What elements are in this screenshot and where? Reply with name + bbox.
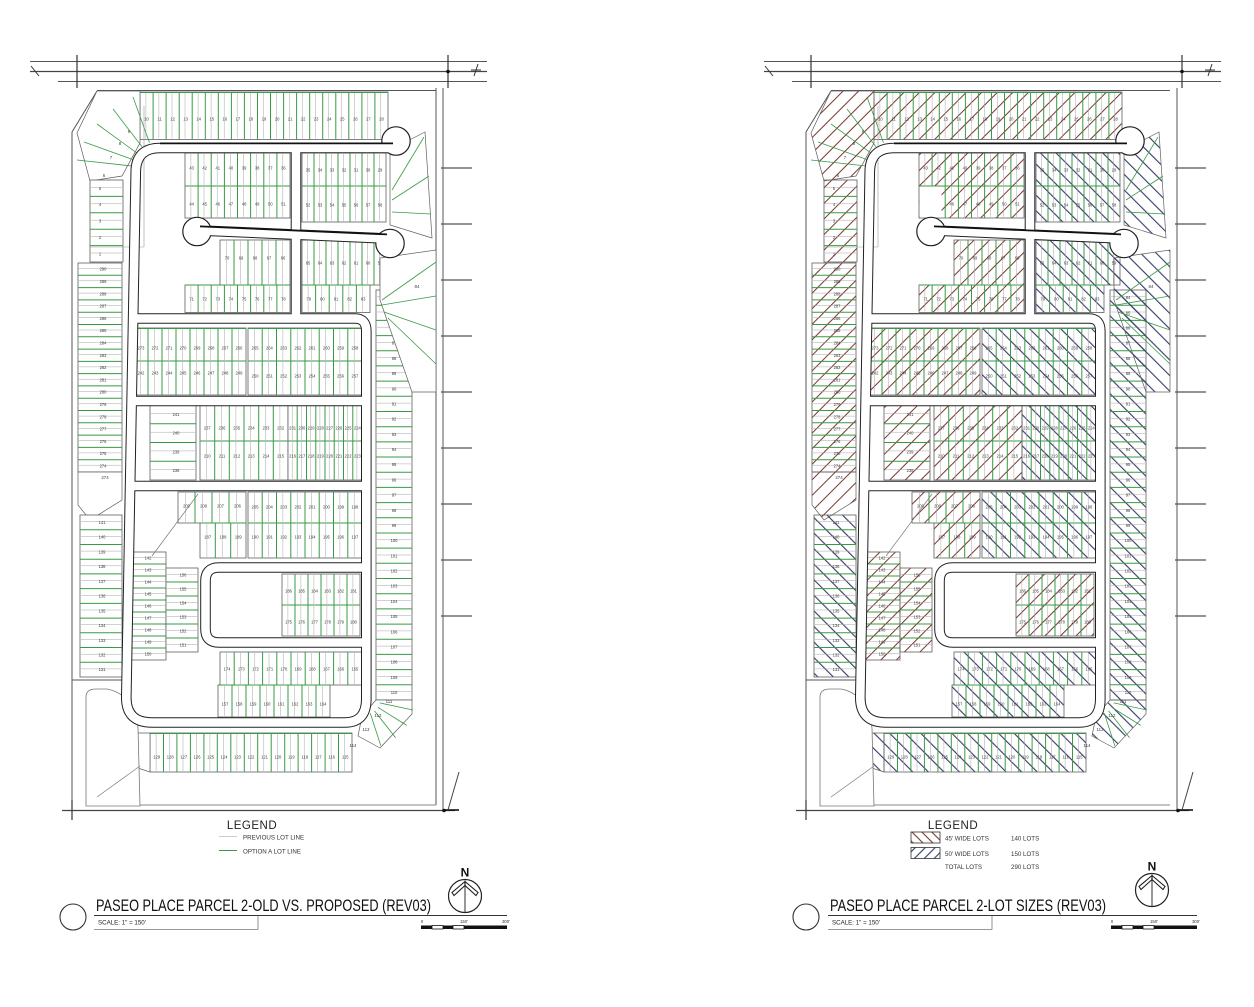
svg-text:174: 174 [224, 667, 232, 672]
svg-text:208: 208 [200, 504, 208, 509]
svg-text:OPTION A LOT LINE: OPTION A LOT LINE [243, 849, 301, 856]
svg-text:139: 139 [99, 549, 107, 554]
svg-text:222: 222 [345, 454, 353, 459]
svg-text:127: 127 [914, 755, 922, 760]
svg-text:147: 147 [145, 616, 153, 621]
svg-text:163: 163 [306, 702, 314, 707]
svg-text:84: 84 [415, 284, 420, 289]
svg-text:10: 10 [144, 117, 149, 122]
svg-text:24: 24 [327, 117, 332, 122]
svg-text:38: 38 [989, 166, 994, 171]
svg-text:79: 79 [307, 297, 312, 302]
svg-text:16: 16 [957, 117, 962, 122]
svg-text:109: 109 [391, 675, 399, 680]
svg-text:69: 69 [239, 256, 244, 261]
svg-text:148: 148 [879, 628, 887, 633]
svg-text:113: 113 [363, 727, 371, 732]
svg-text:168: 168 [309, 667, 317, 672]
svg-text:268: 268 [942, 346, 950, 351]
svg-text:50' WIDE LOTS: 50' WIDE LOTS [945, 851, 989, 858]
svg-text:254: 254 [309, 374, 317, 379]
svg-text:153: 153 [180, 615, 188, 620]
svg-text:95: 95 [392, 462, 397, 467]
svg-text:53: 53 [1052, 203, 1057, 208]
svg-text:10: 10 [878, 117, 883, 122]
svg-text:33: 33 [330, 168, 335, 173]
svg-text:196: 196 [337, 535, 345, 540]
svg-text:PASEO PLACE PARCEL 2-OLD VS. P: PASEO PLACE PARCEL 2-OLD VS. PROPOSED (R… [96, 897, 431, 915]
svg-text:63: 63 [1064, 261, 1069, 266]
svg-text:94: 94 [1126, 447, 1131, 452]
svg-text:51: 51 [1015, 202, 1020, 207]
svg-text:300': 300' [502, 919, 510, 924]
svg-text:249: 249 [970, 371, 978, 376]
svg-text:284: 284 [100, 341, 108, 346]
svg-text:117: 117 [315, 755, 322, 760]
svg-text:161: 161 [1012, 702, 1020, 707]
svg-text:16: 16 [223, 117, 228, 122]
svg-text:228: 228 [1051, 426, 1059, 431]
svg-text:162: 162 [292, 702, 300, 707]
svg-text:178: 178 [324, 620, 332, 625]
svg-text:182: 182 [337, 589, 345, 594]
svg-text:185: 185 [298, 589, 306, 594]
svg-text:199: 199 [337, 505, 345, 510]
svg-text:194: 194 [309, 535, 317, 540]
svg-text:124: 124 [221, 755, 229, 760]
svg-text:216: 216 [1023, 454, 1031, 459]
svg-text:28: 28 [379, 117, 384, 122]
svg-text:242: 242 [138, 371, 146, 376]
svg-text:12: 12 [170, 117, 175, 122]
svg-text:237: 237 [938, 426, 946, 431]
svg-text:164: 164 [320, 702, 328, 707]
svg-text:22: 22 [301, 117, 306, 122]
svg-text:278: 278 [834, 414, 842, 419]
svg-text:152: 152 [180, 629, 188, 634]
svg-text:270: 270 [914, 346, 922, 351]
svg-text:244: 244 [166, 371, 174, 376]
svg-text:32: 32 [1076, 168, 1081, 173]
svg-text:25: 25 [1074, 117, 1079, 122]
svg-text:90: 90 [392, 386, 397, 391]
svg-text:220: 220 [1060, 454, 1068, 459]
svg-text:133: 133 [99, 638, 107, 643]
svg-text:131: 131 [99, 667, 107, 672]
svg-text:257: 257 [351, 374, 359, 379]
svg-text:106: 106 [391, 629, 399, 634]
svg-text:279: 279 [834, 402, 842, 407]
svg-text:151: 151 [914, 643, 922, 648]
svg-text:55: 55 [1076, 203, 1081, 208]
svg-text:252: 252 [280, 374, 288, 379]
svg-text:129: 129 [153, 755, 161, 760]
svg-text:155: 155 [914, 587, 922, 592]
svg-text:68: 68 [987, 256, 992, 261]
svg-text:157: 157 [222, 702, 230, 707]
svg-text:144: 144 [145, 580, 153, 585]
svg-text:138: 138 [833, 564, 841, 569]
svg-text:35: 35 [306, 168, 311, 173]
svg-text:280: 280 [834, 390, 842, 395]
svg-text:128: 128 [901, 755, 909, 760]
svg-text:55: 55 [342, 203, 347, 208]
svg-text:280: 280 [100, 390, 108, 395]
svg-text:106: 106 [1125, 629, 1133, 634]
svg-text:77: 77 [268, 297, 273, 302]
svg-text:188: 188 [954, 535, 962, 540]
svg-text:152: 152 [914, 629, 922, 634]
svg-text:264: 264 [266, 346, 274, 351]
svg-text:76: 76 [255, 297, 260, 302]
svg-text:149: 149 [145, 640, 153, 645]
svg-text:201: 201 [309, 505, 317, 510]
svg-text:159: 159 [984, 702, 992, 707]
svg-text:37: 37 [1002, 166, 1007, 171]
svg-text:186: 186 [1019, 589, 1027, 594]
svg-text:259: 259 [1071, 346, 1079, 351]
svg-text:215: 215 [1011, 454, 1019, 459]
svg-text:42: 42 [936, 166, 941, 171]
svg-text:140: 140 [833, 535, 841, 540]
svg-text:158: 158 [236, 702, 244, 707]
svg-text:118: 118 [302, 755, 309, 760]
svg-text:90: 90 [1126, 386, 1131, 391]
svg-text:107: 107 [391, 645, 399, 650]
svg-text:97: 97 [1126, 493, 1131, 498]
svg-text:222: 222 [1079, 454, 1087, 459]
svg-text:112: 112 [375, 713, 383, 718]
svg-text:22: 22 [1035, 117, 1040, 122]
svg-text:253: 253 [1028, 374, 1036, 379]
svg-text:233: 233 [997, 426, 1005, 431]
svg-text:191: 191 [266, 535, 274, 540]
svg-text:184: 184 [311, 589, 319, 594]
svg-text:160: 160 [264, 702, 272, 707]
svg-text:39: 39 [242, 166, 247, 171]
svg-text:150': 150' [1150, 919, 1158, 924]
svg-text:137: 137 [99, 579, 107, 584]
svg-text:145: 145 [879, 592, 887, 597]
svg-text:45' WIDE LOTS: 45' WIDE LOTS [945, 836, 989, 843]
svg-text:13: 13 [183, 117, 188, 122]
svg-text:142: 142 [879, 556, 887, 561]
svg-text:165: 165 [1085, 667, 1093, 672]
svg-text:212: 212 [233, 454, 241, 459]
svg-text:283: 283 [100, 353, 108, 358]
svg-text:63: 63 [330, 261, 335, 266]
svg-text:N: N [461, 866, 470, 880]
svg-text:103: 103 [1125, 584, 1133, 589]
svg-text:72: 72 [936, 297, 941, 302]
svg-text:215: 215 [277, 454, 285, 459]
svg-text:273: 273 [138, 346, 146, 351]
svg-text:133: 133 [833, 638, 841, 643]
svg-text:248: 248 [956, 371, 964, 376]
svg-text:275: 275 [834, 451, 842, 456]
svg-text:214: 214 [997, 454, 1005, 459]
svg-text:115: 115 [342, 755, 349, 760]
svg-text:76: 76 [989, 297, 994, 302]
svg-text:91: 91 [1126, 402, 1131, 407]
svg-text:143: 143 [879, 568, 887, 573]
svg-text:161: 161 [278, 702, 286, 707]
svg-text:12: 12 [904, 117, 909, 122]
svg-text:88: 88 [1126, 356, 1131, 361]
svg-text:216: 216 [289, 454, 297, 459]
svg-text:246: 246 [928, 371, 936, 376]
svg-text:234: 234 [982, 426, 990, 431]
svg-text:153: 153 [914, 615, 922, 620]
svg-text:15: 15 [944, 117, 949, 122]
svg-text:37: 37 [268, 166, 273, 171]
svg-text:256: 256 [1071, 374, 1079, 379]
svg-text:192: 192 [1014, 535, 1022, 540]
svg-text:271: 271 [166, 346, 174, 351]
svg-text:204: 204 [1000, 505, 1008, 510]
svg-text:275: 275 [100, 451, 108, 456]
svg-text:120: 120 [1008, 755, 1016, 760]
svg-text:263: 263 [1014, 346, 1022, 351]
svg-text:102: 102 [391, 569, 399, 574]
svg-text:95: 95 [1126, 462, 1131, 467]
svg-text:245: 245 [180, 371, 188, 376]
svg-text:101: 101 [391, 553, 399, 558]
svg-text:66: 66 [281, 256, 286, 261]
svg-text:14: 14 [196, 117, 201, 122]
svg-text:111: 111 [1120, 699, 1127, 704]
svg-text:184: 184 [1045, 589, 1053, 594]
svg-text:286: 286 [834, 316, 842, 321]
svg-text:132: 132 [99, 653, 107, 658]
svg-text:196: 196 [1071, 535, 1079, 540]
svg-text:193: 193 [294, 535, 302, 540]
svg-text:254: 254 [1043, 374, 1051, 379]
svg-text:217: 217 [1032, 454, 1040, 459]
svg-text:150: 150 [879, 652, 887, 657]
svg-text:188: 188 [220, 535, 228, 540]
svg-text:103: 103 [391, 584, 399, 589]
svg-text:99: 99 [1126, 523, 1131, 528]
svg-text:93: 93 [392, 432, 397, 437]
svg-text:57: 57 [366, 203, 371, 208]
svg-text:158: 158 [970, 702, 978, 707]
svg-text:136: 136 [99, 594, 107, 599]
svg-text:27: 27 [1100, 117, 1105, 122]
svg-text:15: 15 [210, 117, 215, 122]
svg-text:94: 94 [392, 447, 397, 452]
svg-text:290: 290 [100, 267, 108, 272]
svg-text:30: 30 [366, 168, 371, 173]
svg-text:72: 72 [202, 297, 207, 302]
svg-text:125: 125 [207, 755, 215, 760]
svg-text:14: 14 [930, 117, 935, 122]
svg-text:26: 26 [353, 117, 358, 122]
svg-text:129: 129 [887, 755, 895, 760]
svg-text:80: 80 [320, 297, 325, 302]
svg-text:265: 265 [986, 346, 994, 351]
svg-text:195: 195 [1057, 535, 1065, 540]
svg-text:48: 48 [242, 202, 247, 207]
svg-text:171: 171 [1000, 667, 1008, 672]
svg-text:218: 218 [308, 454, 316, 459]
svg-text:200: 200 [323, 505, 331, 510]
svg-text:258: 258 [351, 346, 359, 351]
svg-text:19: 19 [262, 117, 267, 122]
svg-text:83: 83 [361, 297, 366, 302]
svg-text:160: 160 [998, 702, 1006, 707]
svg-text:23: 23 [314, 117, 319, 122]
svg-text:92: 92 [392, 417, 397, 422]
svg-text:18: 18 [983, 117, 988, 122]
svg-text:247: 247 [208, 371, 216, 376]
svg-text:107: 107 [1125, 645, 1133, 650]
svg-text:105: 105 [391, 614, 399, 619]
svg-text:290: 290 [834, 267, 842, 272]
svg-text:169: 169 [1029, 667, 1037, 672]
svg-text:214: 214 [263, 454, 271, 459]
svg-text:75: 75 [976, 297, 981, 302]
svg-text:102: 102 [1125, 569, 1133, 574]
svg-text:231: 231 [289, 426, 297, 431]
svg-text:44: 44 [189, 202, 194, 207]
svg-text:101: 101 [1125, 553, 1133, 558]
svg-text:66: 66 [1015, 256, 1020, 261]
svg-text:116: 116 [329, 755, 336, 760]
svg-text:PASEO PLACE PARCEL 2-LOT SIZES: PASEO PLACE PARCEL 2-LOT SIZES (REV03) [830, 897, 1106, 915]
svg-text:140 LOTS: 140 LOTS [1011, 836, 1039, 843]
svg-text:236: 236 [953, 426, 961, 431]
svg-text:21: 21 [1022, 117, 1027, 122]
svg-text:276: 276 [834, 439, 842, 444]
svg-text:155: 155 [180, 587, 188, 592]
svg-text:127: 127 [180, 755, 188, 760]
svg-text:260: 260 [1057, 346, 1065, 351]
svg-text:289: 289 [834, 279, 842, 284]
svg-text:249: 249 [236, 371, 244, 376]
svg-text:261: 261 [309, 346, 317, 351]
svg-text:20: 20 [275, 117, 280, 122]
svg-text:261: 261 [1043, 346, 1051, 351]
svg-text:262: 262 [294, 346, 302, 351]
svg-text:231: 231 [1023, 426, 1031, 431]
svg-text:69: 69 [973, 256, 978, 261]
svg-text:232: 232 [1011, 426, 1019, 431]
svg-text:166: 166 [337, 667, 345, 672]
svg-text:228: 228 [317, 426, 325, 431]
svg-text:47: 47 [229, 202, 234, 207]
svg-text:173: 173 [972, 667, 980, 672]
svg-text:224: 224 [354, 426, 362, 431]
svg-text:264: 264 [1000, 346, 1008, 351]
svg-text:31: 31 [354, 168, 359, 173]
svg-text:118: 118 [1036, 755, 1043, 760]
svg-text:300': 300' [1192, 919, 1200, 924]
svg-text:136: 136 [833, 594, 841, 599]
svg-text:283: 283 [834, 353, 842, 358]
svg-text:176: 176 [1032, 620, 1040, 625]
svg-text:83: 83 [1095, 297, 1100, 302]
svg-text:172: 172 [252, 667, 260, 672]
svg-text:260: 260 [323, 346, 331, 351]
svg-text:270: 270 [180, 346, 188, 351]
svg-text:201: 201 [1043, 505, 1051, 510]
svg-text:104: 104 [1125, 599, 1133, 604]
svg-text:192: 192 [280, 535, 288, 540]
svg-text:50: 50 [268, 202, 273, 207]
svg-text:108: 108 [1125, 660, 1133, 665]
svg-text:262: 262 [1028, 346, 1036, 351]
svg-text:202: 202 [1028, 505, 1036, 510]
svg-text:28: 28 [1113, 117, 1118, 122]
svg-text:137: 137 [833, 579, 841, 584]
svg-text:200: 200 [1057, 505, 1065, 510]
svg-text:211: 211 [219, 454, 226, 459]
svg-text:SCALE: 1" = 150': SCALE: 1" = 150' [98, 920, 146, 927]
svg-text:84: 84 [1149, 284, 1154, 289]
svg-text:256: 256 [337, 374, 345, 379]
svg-text:43: 43 [923, 166, 928, 171]
svg-text:167: 167 [1057, 667, 1065, 672]
svg-text:235: 235 [967, 426, 975, 431]
svg-text:150 LOTS: 150 LOTS [1011, 851, 1039, 858]
svg-text:117: 117 [1049, 755, 1056, 760]
svg-text:175: 175 [1019, 620, 1027, 625]
svg-text:30: 30 [1100, 168, 1105, 173]
svg-text:183: 183 [1058, 589, 1066, 594]
svg-text:141: 141 [99, 520, 107, 525]
svg-text:230: 230 [298, 426, 306, 431]
svg-text:41: 41 [950, 166, 955, 171]
svg-text:52: 52 [1040, 203, 1045, 208]
svg-text:100: 100 [1125, 538, 1133, 543]
svg-text:213: 213 [982, 454, 990, 459]
svg-text:145: 145 [145, 592, 153, 597]
svg-text:163: 163 [1040, 702, 1048, 707]
svg-text:78: 78 [1015, 297, 1020, 302]
svg-text:140: 140 [99, 535, 107, 540]
svg-text:47: 47 [963, 202, 968, 207]
svg-text:257: 257 [1085, 374, 1093, 379]
svg-text:265: 265 [252, 346, 260, 351]
svg-text:54: 54 [330, 203, 335, 208]
svg-text:195: 195 [323, 535, 331, 540]
svg-text:285: 285 [100, 328, 108, 333]
svg-text:286: 286 [100, 316, 108, 321]
svg-text:238: 238 [173, 468, 181, 473]
svg-text:236: 236 [219, 426, 227, 431]
svg-text:132: 132 [833, 653, 841, 658]
svg-text:112: 112 [1109, 713, 1117, 718]
svg-text:99: 99 [392, 523, 397, 528]
svg-text:282: 282 [100, 365, 108, 370]
svg-text:210: 210 [204, 454, 212, 459]
svg-text:34: 34 [318, 168, 323, 173]
svg-text:288: 288 [100, 291, 108, 296]
svg-text:233: 233 [263, 426, 271, 431]
svg-text:58: 58 [378, 203, 383, 208]
svg-text:98: 98 [1126, 508, 1131, 513]
svg-text:186: 186 [285, 589, 293, 594]
svg-text:46: 46 [950, 202, 955, 207]
svg-text:67: 67 [267, 256, 272, 261]
svg-text:281: 281 [100, 377, 108, 382]
svg-text:220: 220 [326, 454, 334, 459]
svg-text:189: 189 [969, 535, 977, 540]
svg-text:119: 119 [1022, 755, 1029, 760]
svg-text:269: 269 [194, 346, 202, 351]
svg-text:52: 52 [306, 203, 311, 208]
